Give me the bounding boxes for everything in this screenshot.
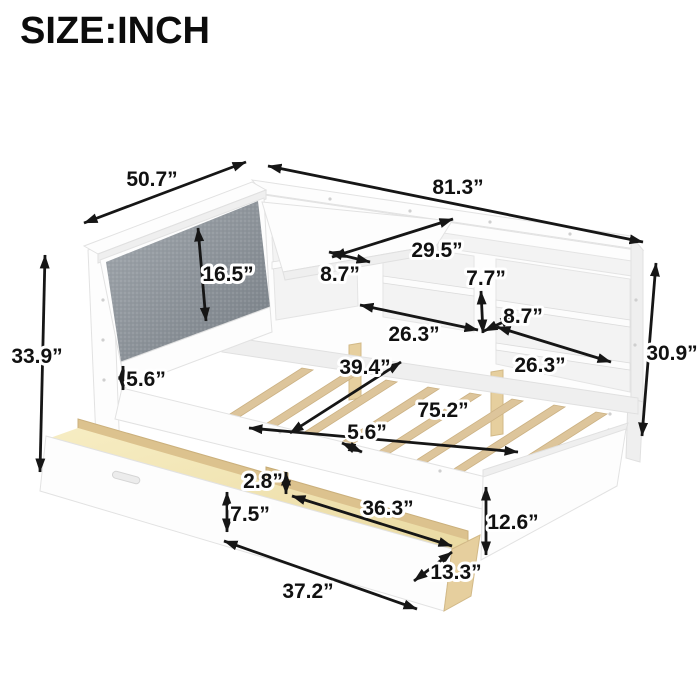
dim-label-ledge-depth: 8.7” [320,263,360,286]
dim-label-bed-inner-length: 75.2” [417,399,468,422]
dim-label-right-shelf-width: 26.3” [514,354,565,377]
dim-label-ledge-length: 29.5” [411,239,462,262]
dim-label-drawer-divider-height: 2.8” [243,470,283,493]
dim-label-right-shelf-depth: 8.7” [503,305,543,328]
dim-label-drawer-inner-length: 36.3” [362,497,413,520]
dim-label-middle-shelf-width: 26.3” [388,323,439,346]
bookcase-end-panel [631,236,643,402]
dim-label-bookcase-height: 30.9” [646,342,697,365]
dim-label-drawer-outer-length: 37.2” [282,580,333,603]
dim-label-headboard-height: 33.9” [11,345,62,368]
dim-label-slat-spacing: 5.6” [347,421,387,444]
dim-label-cushion-height: 16.5” [202,263,253,286]
dim-label-bed-width: 39.4” [339,356,390,379]
dimension-diagram: SIZE:INCH [0,0,700,700]
dim-label-headboard-width: 50.7” [126,168,177,191]
dim-label-rail-height: 5.6” [126,368,166,391]
dim-label-drawer-front-height: 7.5” [230,503,270,526]
dim-label-footboard-height: 12.6” [487,511,538,534]
dim-label-overall-length: 81.3” [432,176,483,199]
dim-label-drawer-depth: 13.3” [430,561,481,584]
bed-diagram-svg: 50.7” 81.3” 29.5” 8.7” 16.5” 7.7” 8.7” 2… [0,0,700,700]
dim-arrow-shelf-opening-height [481,291,483,333]
dim-label-shelf-opening-height: 7.7” [466,267,506,290]
